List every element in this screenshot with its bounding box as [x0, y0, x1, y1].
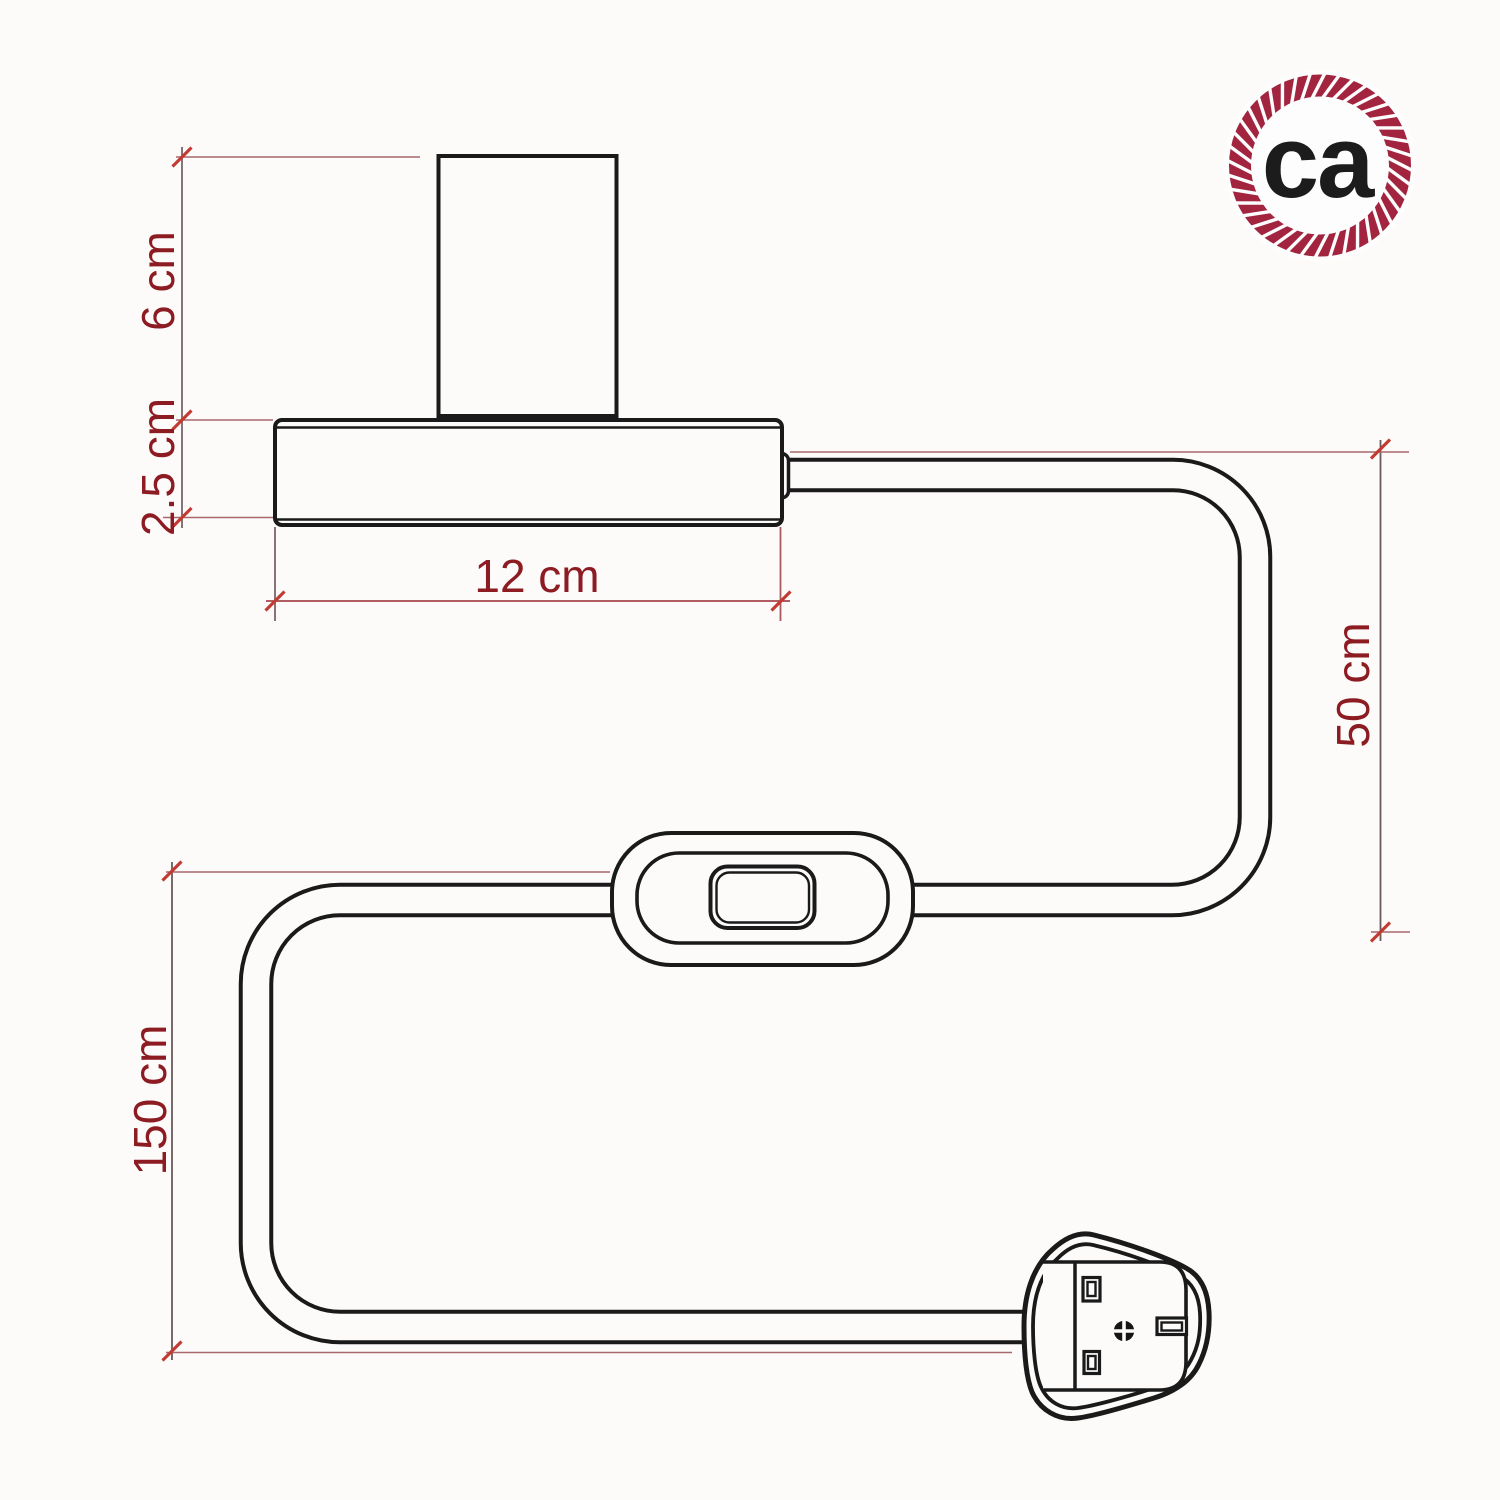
- svg-text:12 cm: 12 cm: [474, 550, 599, 602]
- svg-text:6 cm: 6 cm: [132, 231, 184, 331]
- svg-text:50 cm: 50 cm: [1327, 622, 1379, 747]
- svg-text:2.5 cm: 2.5 cm: [132, 398, 184, 536]
- svg-text:ca: ca: [1262, 104, 1375, 219]
- svg-text:150 cm: 150 cm: [124, 1025, 176, 1176]
